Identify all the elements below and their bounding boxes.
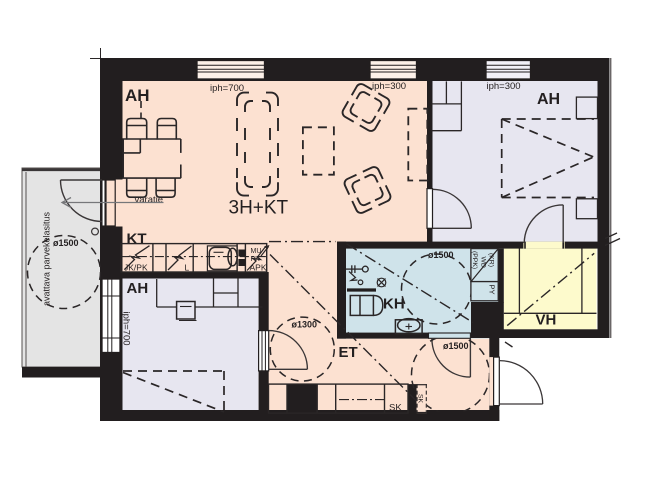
svg-text:SK: SK: [389, 403, 402, 414]
svg-text:AH: AH: [127, 280, 149, 297]
svg-text:SK: SK: [417, 394, 424, 404]
svg-text:(KR): (KR): [488, 253, 495, 267]
svg-text:KH: KH: [383, 296, 405, 313]
svg-text:ø1500: ø1500: [443, 341, 469, 351]
svg-text:ø1500: ø1500: [428, 250, 454, 260]
svg-text:L: L: [185, 263, 190, 273]
svg-text:ET: ET: [339, 344, 358, 361]
svg-text:iph=700: iph=700: [121, 312, 132, 346]
svg-text:varatie: varatie: [135, 195, 164, 206]
svg-text:APK: APK: [250, 263, 267, 273]
svg-text:PY: PY: [488, 285, 497, 295]
svg-text:VH: VH: [536, 312, 557, 329]
svg-text:JK/PK: JK/PK: [124, 263, 148, 273]
svg-text:ø1300: ø1300: [292, 320, 318, 330]
svg-text:iph=300: iph=300: [487, 81, 521, 92]
svg-text:avattava parvekelasitus: avattava parvekelasitus: [42, 211, 52, 306]
svg-text:AH: AH: [125, 86, 150, 105]
svg-text:MU: MU: [251, 248, 262, 255]
svg-text:ø1500: ø1500: [53, 238, 79, 248]
svg-text:3H+KT: 3H+KT: [229, 198, 289, 219]
svg-text:KT: KT: [127, 231, 147, 248]
svg-text:(PPK): (PPK): [471, 251, 478, 269]
svg-text:iph=700: iph=700: [210, 83, 244, 94]
svg-text:iph=300: iph=300: [372, 81, 406, 92]
svg-text:WD: WD: [480, 257, 487, 268]
svg-text:AH: AH: [537, 91, 560, 108]
